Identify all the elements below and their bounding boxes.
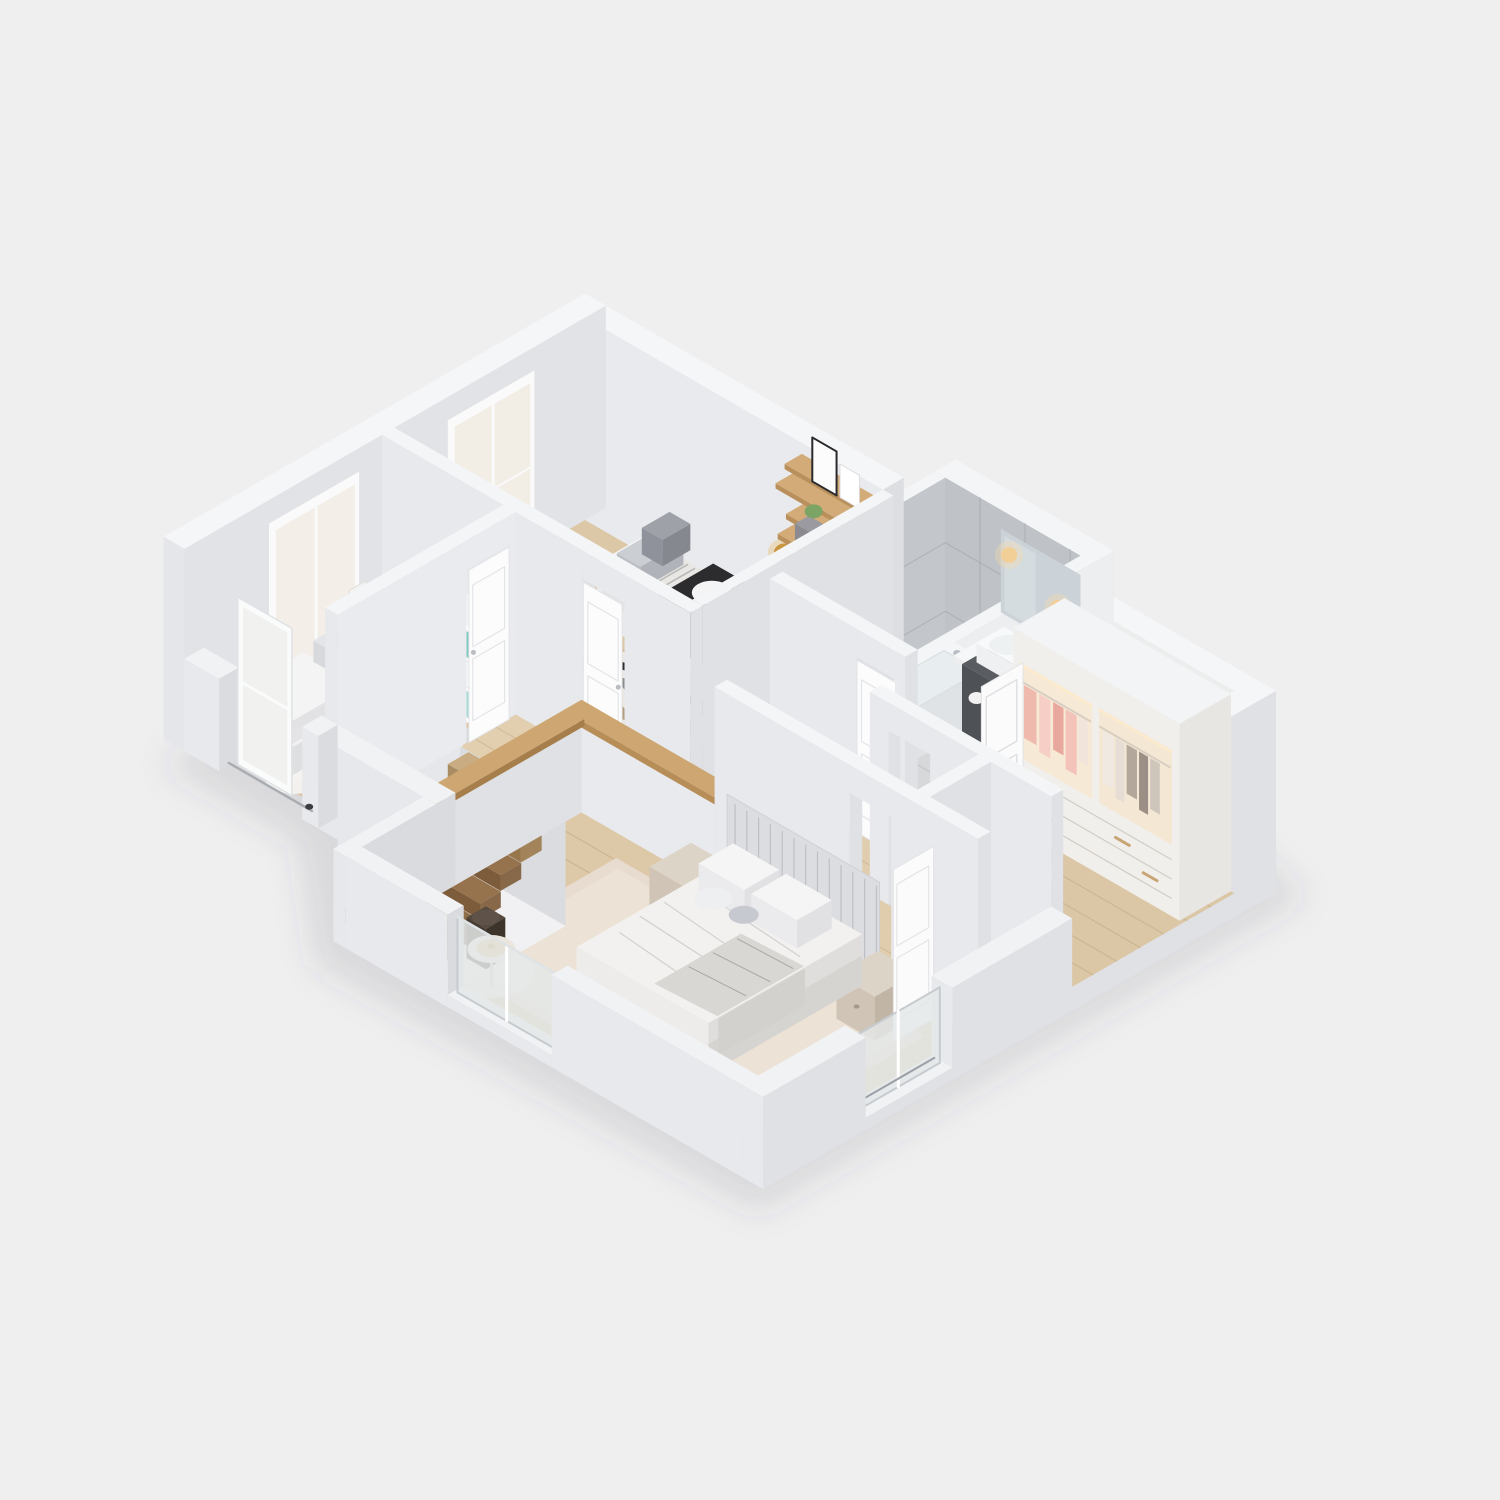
apartment-3d-floor-plan — [0, 0, 1500, 1500]
bedroom2-south-wall — [184, 648, 238, 772]
hanging-clothes-pink — [1039, 694, 1050, 758]
hanging-clothes-pink — [1053, 702, 1063, 756]
hanging-clothes-taupe — [1139, 752, 1148, 815]
door-knob — [616, 685, 621, 690]
nightstand-knob — [854, 1005, 860, 1009]
door-knob — [471, 650, 476, 655]
stool-dark-top — [472, 910, 500, 926]
bedroom2-south-wall — [302, 716, 337, 829]
hanging-clothes-pink — [1066, 709, 1077, 775]
hanging-clothes-pink — [1024, 685, 1036, 745]
sconce-light — [1001, 547, 1017, 563]
hanging-clothes-white — [1115, 738, 1124, 803]
deco-pillow — [729, 906, 759, 924]
master-pillow-front — [694, 888, 732, 910]
hanging-clothes-taupe — [1150, 758, 1160, 815]
balcony-bracket — [305, 804, 313, 810]
hanging-clothes-taupe — [1127, 744, 1137, 799]
hanging-clothes-white — [1103, 731, 1113, 790]
hanging-clothes-white — [1079, 717, 1088, 766]
shelf-plant — [805, 504, 823, 518]
floor-plan-stage — [0, 0, 1500, 1500]
